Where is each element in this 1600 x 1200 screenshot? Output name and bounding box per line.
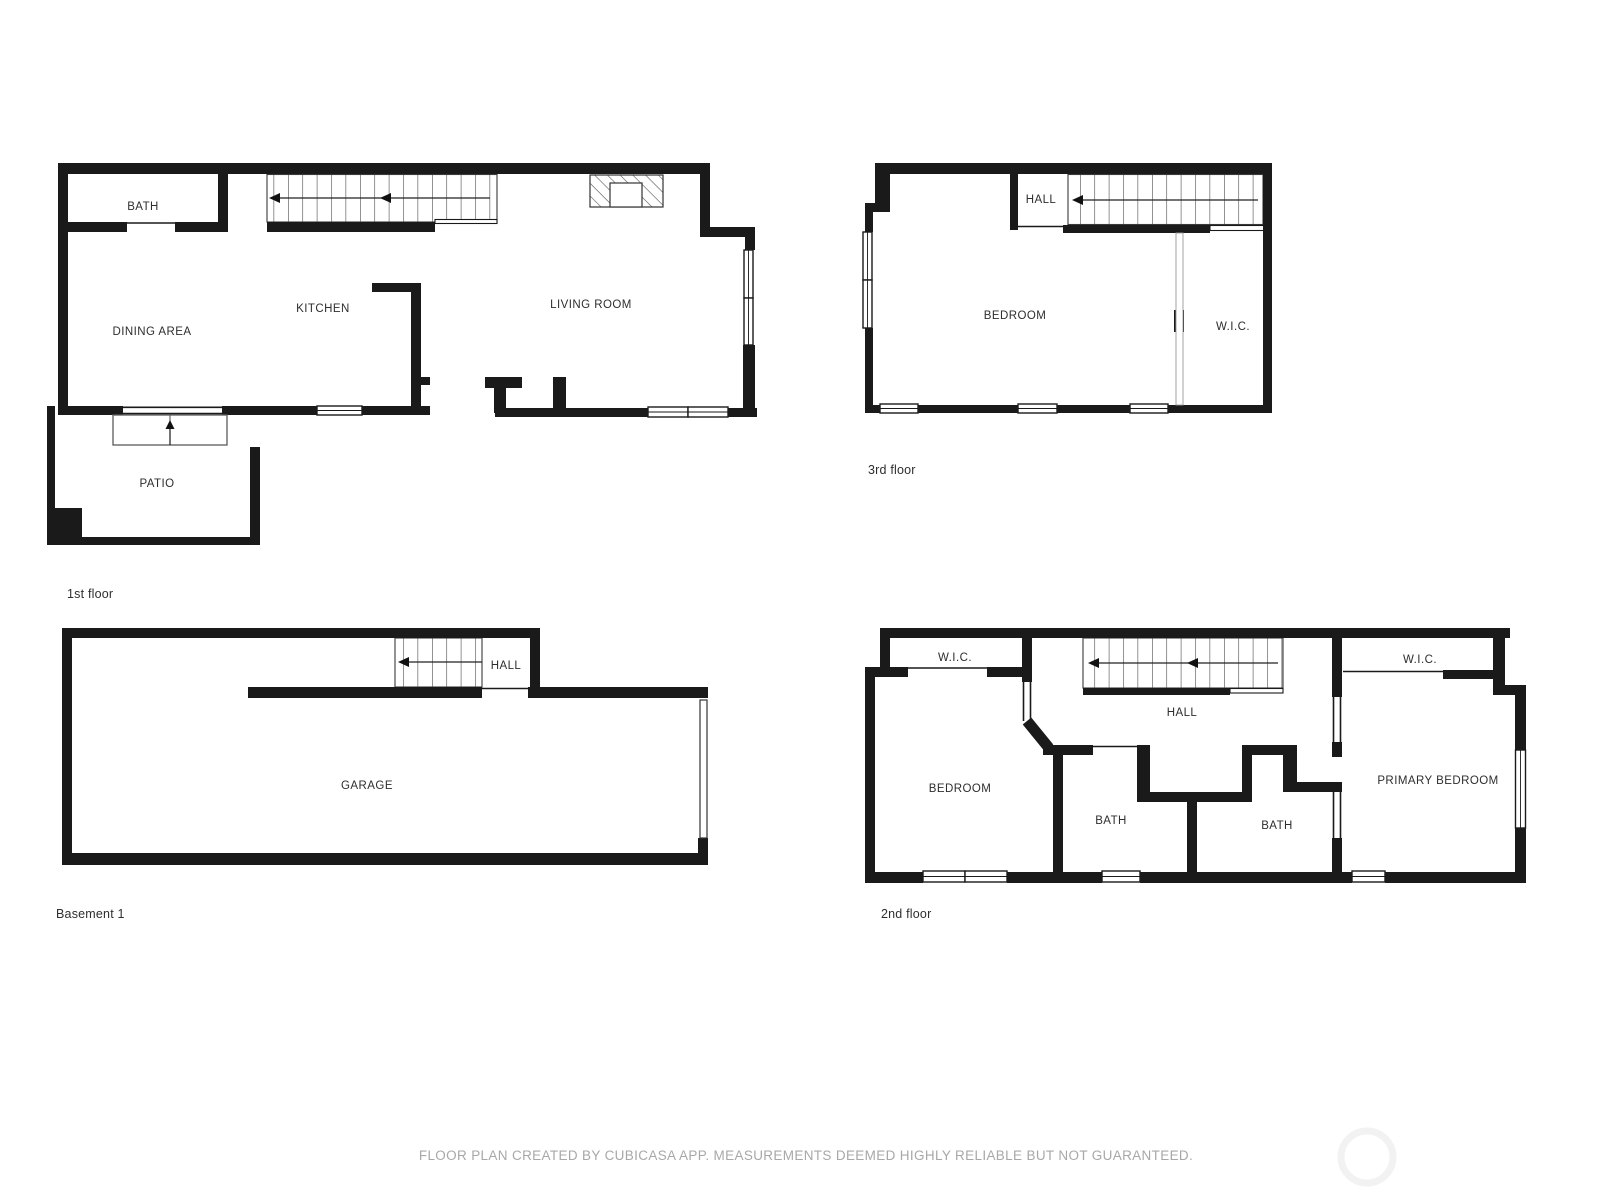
- footer-disclaimer: FLOOR PLAN CREATED BY CUBICASA APP. MEAS…: [419, 1148, 1193, 1163]
- room-label-bedroom-2nd: BEDROOM: [929, 783, 992, 795]
- first-floor-doors: [123, 223, 222, 415]
- second-floor-stairs: [1083, 638, 1283, 693]
- room-label-dining-area: DINING AREA: [112, 326, 191, 338]
- basement-walls: [62, 628, 708, 865]
- floor-plan-page: BATH DINING AREA KITCHEN LIVING ROOM PAT…: [0, 0, 1600, 1200]
- third-floor-windows: [863, 232, 1168, 413]
- room-label-wic-2nd-left: W.I.C.: [938, 652, 972, 664]
- floor-label-1st-floor: 1st floor: [67, 587, 113, 601]
- floor-label-3rd-floor: 3rd floor: [868, 463, 916, 477]
- room-label-hall-2nd: HALL: [1167, 707, 1198, 719]
- floor-label-basement-1: Basement 1: [56, 907, 125, 921]
- room-label-hall-3rd: HALL: [1026, 194, 1057, 206]
- watermark-circle: [1341, 1131, 1393, 1183]
- second-floor-windows: [923, 750, 1526, 882]
- room-label-living-room: LIVING ROOM: [550, 299, 632, 311]
- room-label-bedroom-3rd: BEDROOM: [984, 310, 1047, 322]
- basement-stairs: [395, 638, 482, 687]
- fireplace: [590, 175, 663, 207]
- patio-entry-porch: [113, 415, 227, 445]
- room-label-patio: PATIO: [139, 478, 174, 490]
- room-label-bath-2nd-right: BATH: [1261, 820, 1293, 832]
- room-label-hall-basement: HALL: [491, 660, 522, 672]
- third-floor-stairs: [1068, 175, 1267, 231]
- first-floor-plan: BATH DINING AREA KITCHEN LIVING ROOM PAT…: [47, 163, 757, 601]
- room-label-bath-2nd-left: BATH: [1095, 815, 1127, 827]
- second-floor-plan: W.I.C. BEDROOM HALL BATH BATH W.I.C. PRI…: [865, 628, 1526, 921]
- room-label-wic-3rd: W.I.C.: [1216, 321, 1250, 333]
- third-floor-partition: [1176, 233, 1183, 405]
- basement-plan: HALL GARAGE Basement 1: [56, 628, 708, 921]
- third-floor-plan: HALL BEDROOM W.I.C. 3rd floor: [863, 163, 1272, 477]
- first-floor-windows: [317, 250, 753, 417]
- floor-plan-canvas: BATH DINING AREA KITCHEN LIVING ROOM PAT…: [0, 0, 1600, 1200]
- room-label-primary-bedroom: PRIMARY BEDROOM: [1377, 775, 1498, 787]
- floor-label-2nd-floor: 2nd floor: [881, 907, 931, 921]
- room-label-kitchen: KITCHEN: [296, 303, 350, 315]
- basement-doors: [482, 689, 707, 839]
- first-floor-stairs: [267, 175, 497, 224]
- room-label-garage: GARAGE: [341, 780, 393, 792]
- second-floor-diagonal-wall: [1027, 721, 1049, 748]
- garage-door: [700, 700, 707, 838]
- room-label-wic-2nd-right: W.I.C.: [1403, 654, 1437, 666]
- room-label-bath-1st: BATH: [127, 201, 159, 213]
